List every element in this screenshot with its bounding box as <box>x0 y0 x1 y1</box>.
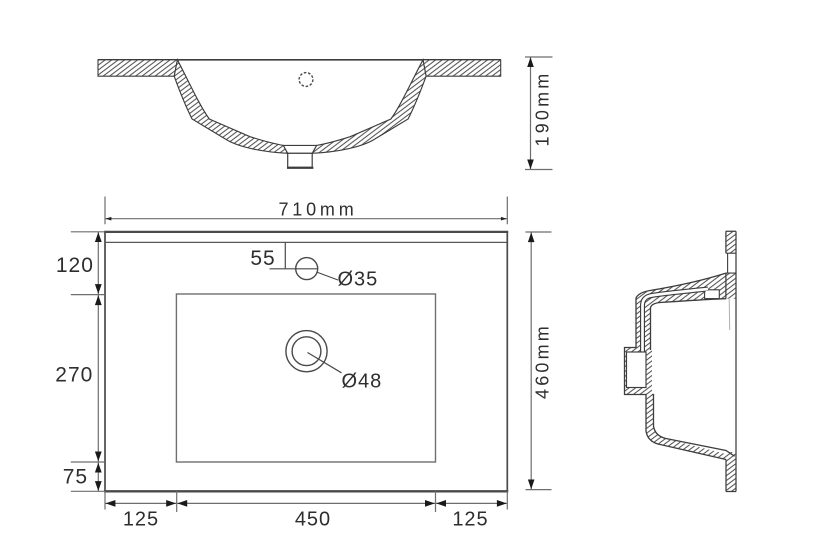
svg-text:120: 120 <box>56 254 94 277</box>
svg-text:460mm: 460mm <box>533 323 553 399</box>
svg-text:Ø48: Ø48 <box>342 370 383 392</box>
svg-text:55: 55 <box>250 247 275 270</box>
svg-text:125: 125 <box>452 508 488 530</box>
svg-text:190mm: 190mm <box>533 70 553 146</box>
svg-text:125: 125 <box>123 508 159 530</box>
svg-text:450: 450 <box>295 508 331 530</box>
svg-text:Ø35: Ø35 <box>338 268 379 290</box>
svg-text:270: 270 <box>55 364 93 387</box>
svg-text:75: 75 <box>63 465 88 488</box>
svg-text:710mm: 710mm <box>278 199 357 219</box>
